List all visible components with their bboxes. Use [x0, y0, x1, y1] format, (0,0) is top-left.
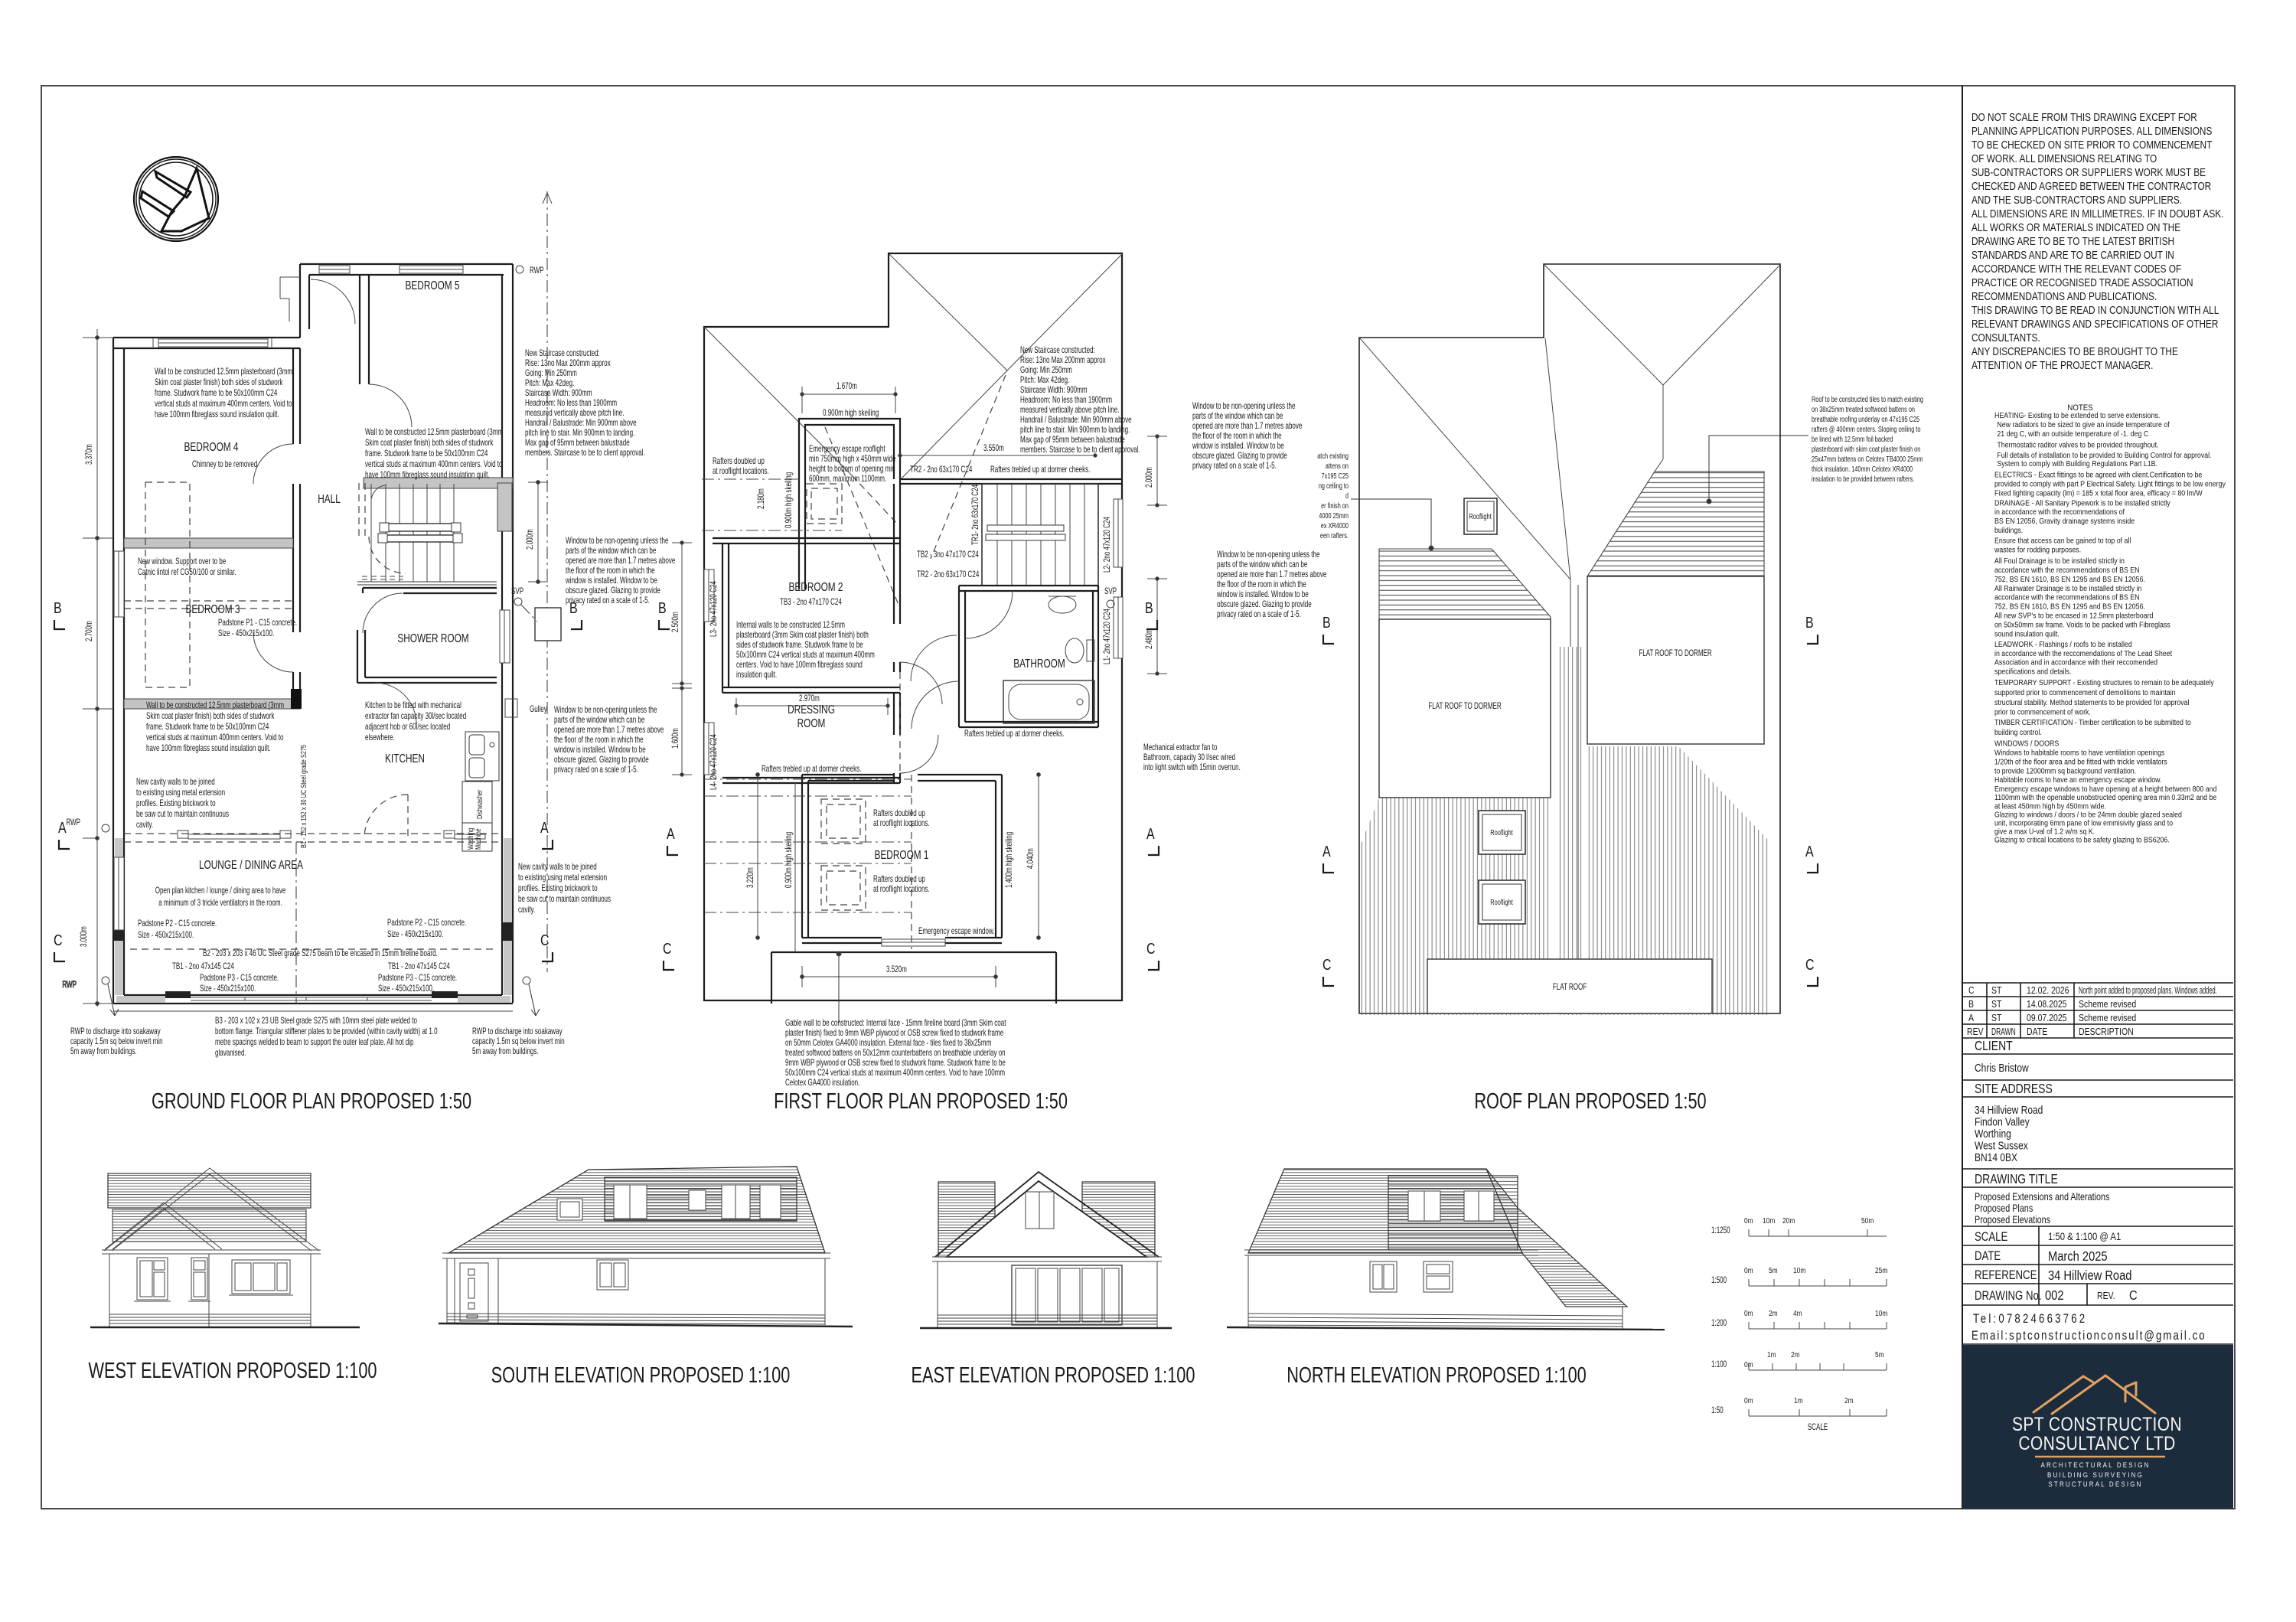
svg-text:BEDROOM 4: BEDROOM 4: [184, 439, 239, 453]
svg-text:KITCHEN: KITCHEN: [385, 751, 425, 765]
svg-text:0m: 0m: [1744, 1309, 1753, 1318]
svg-text:B3 - 203 x 102 x 23 UB Steel: B3 - 203 x 102 x 23 UB Steel grade S275 …: [215, 1017, 438, 1059]
svg-text:C: C: [1146, 940, 1156, 957]
svg-text:BATHROOM: BATHROOM: [1013, 656, 1065, 670]
svg-text:FIRST FLOOR PLAN PROPOSED 1:50: FIRST FLOOR PLAN PROPOSED 1:50: [774, 1089, 1068, 1114]
svg-text:BEDROOM 3: BEDROOM 3: [186, 602, 240, 615]
svg-text:34 Hillview Road Findon Valley: 34 Hillview Road Findon Valley Worthing …: [1975, 1104, 2046, 1164]
svg-text:DATE: DATE: [2027, 1027, 2047, 1037]
svg-text:NORTH ELEVATION PROPOSED 1:100: NORTH ELEVATION PROPOSED 1:100: [1287, 1363, 1587, 1388]
svg-text:3.550m: 3.550m: [983, 444, 1004, 454]
svg-text:1:500: 1:500: [1711, 1276, 1727, 1286]
svg-text:10m: 10m: [1793, 1266, 1805, 1275]
svg-text:A: A: [540, 819, 549, 836]
svg-text:C: C: [540, 932, 550, 948]
svg-text:1.670m: 1.670m: [837, 382, 857, 392]
svg-text:B: B: [54, 599, 62, 616]
svg-text:Gulley: Gulley: [530, 705, 547, 715]
svg-text:GROUND FLOOR PLAN PROPOSED 1:5: GROUND FLOOR PLAN PROPOSED 1:50: [152, 1089, 471, 1114]
svg-text:1:100: 1:100: [1711, 1360, 1727, 1370]
svg-text:Emergency escape window.: Emergency escape window.: [918, 927, 995, 937]
svg-text:Padstone P3 - C15 concrete.Siz: Padstone P3 - C15 concrete.Size - 450x21…: [200, 974, 279, 994]
svg-text:B: B: [569, 599, 578, 616]
svg-text:RWP: RWP: [530, 266, 544, 276]
svg-text:L4- 2no 47x120 C24: L4- 2no 47x120 C24: [709, 734, 719, 790]
svg-text:0.900m high skeiling: 0.900m high skeiling: [784, 472, 794, 528]
svg-text:TB3 - 2no 47x170 C24: TB3 - 2no 47x170 C24: [780, 598, 842, 608]
svg-text:RWP: RWP: [62, 981, 77, 990]
svg-text:DESCRIPTION: DESCRIPTION: [2079, 1027, 2134, 1037]
svg-text:BEDROOM 5: BEDROOM 5: [406, 278, 460, 292]
svg-text:SOUTH ELEVATION PROPOSED 1:100: SOUTH ELEVATION PROPOSED 1:100: [491, 1363, 791, 1388]
svg-text:LOUNGE / DINING AREA: LOUNGE / DINING AREA: [199, 857, 304, 871]
svg-text:RWP: RWP: [66, 818, 80, 828]
svg-text:RWP to discharge into soakaway: RWP to discharge into soakawaycapacity 1…: [472, 1027, 565, 1057]
svg-text:BEDROOM 1: BEDROOM 1: [875, 847, 929, 861]
svg-text:Open plan kitchen / lounge / d: Open plan kitchen / lounge / dining area…: [155, 886, 286, 909]
svg-text:STRUCTURAL DESIGN: STRUCTURAL DESIGN: [2048, 1480, 2142, 1488]
svg-text:Rafters doubled upat rooflight: Rafters doubled upat rooflight locations…: [713, 457, 769, 477]
svg-text:TR1- 2no 63x170 C24: TR1- 2no 63x170 C24: [971, 485, 981, 545]
svg-text:5m: 5m: [1769, 1266, 1778, 1275]
svg-text:Rafters trebled up at dormer: Rafters trebled up at dormer cheeks.: [762, 765, 861, 775]
svg-text:25m: 25m: [1875, 1266, 1887, 1275]
svg-text:2m: 2m: [1769, 1309, 1778, 1318]
svg-text:WEST ELEVATION PROPOSED 1:100: WEST ELEVATION PROPOSED 1:100: [88, 1359, 377, 1383]
svg-text:10m: 10m: [1875, 1309, 1887, 1318]
svg-text:A: A: [667, 825, 675, 842]
svg-text:L3- 2no 47x120 C24: L3- 2no 47x120 C24: [709, 581, 719, 637]
svg-text:Mechanical extractor fan toBat: Mechanical extractor fan toBathroom, cap…: [1143, 743, 1241, 773]
svg-text:Rafters trebled up at dormer: Rafters trebled up at dormer cheeks.: [964, 729, 1064, 739]
svg-text:A: A: [1805, 843, 1814, 860]
svg-text:0m: 0m: [1744, 1266, 1753, 1275]
svg-text:Rooflight: Rooflight: [1490, 898, 1513, 906]
svg-text:10m: 10m: [1763, 1216, 1775, 1225]
svg-text:4m: 4m: [1793, 1309, 1802, 1318]
svg-text:14.08.2025: 14.08.2025: [2027, 1000, 2067, 1010]
svg-text:Wall to be constructed 12.5mm: Wall to be constructed 12.5mm plasterboa…: [365, 428, 503, 481]
svg-text:ARCHITECTURAL DESIGN: ARCHITECTURAL DESIGN: [2040, 1460, 2150, 1469]
svg-text:C: C: [1805, 956, 1815, 973]
svg-text:2.180m: 2.180m: [757, 488, 767, 509]
svg-text:Internal walls to be construct: Internal walls to be constructed 12.5mmp…: [736, 621, 875, 680]
svg-text:BUILDING SURVEYING: BUILDING SURVEYING: [2047, 1470, 2144, 1479]
svg-text:New cavity walls to be joinedt: New cavity walls to be joinedto existing…: [136, 778, 229, 831]
svg-text:002: 002: [2045, 1288, 2064, 1303]
svg-text:SVP: SVP: [511, 587, 523, 597]
svg-text:Window to be non-opening unles: Window to be non-opening unless theparts…: [553, 706, 664, 775]
svg-text:2.480m: 2.480m: [1145, 628, 1155, 649]
svg-text:B: B: [1322, 614, 1331, 631]
svg-text:Chimney to be removed: Chimney to be removed: [192, 460, 257, 470]
svg-text:Email:sptconstructionconsult@g: Email:sptconstructionconsult@gmail.co: [1971, 1329, 2206, 1343]
svg-text:2m: 2m: [1791, 1350, 1800, 1359]
svg-text:TB1 - 2no 47x145 C24: TB1 - 2no 47x145 C24: [388, 962, 450, 972]
svg-text:Rafters doubled upat rooflight: Rafters doubled upat rooflight locations…: [873, 809, 930, 829]
svg-text:2.000m: 2.000m: [1145, 467, 1155, 488]
svg-text:A: A: [1146, 825, 1155, 842]
svg-text:1m: 1m: [1794, 1396, 1803, 1405]
svg-text:2.970m: 2.970m: [799, 694, 820, 704]
svg-text:REV: REV: [1967, 1027, 1984, 1037]
svg-text:Dishwasher: Dishwasher: [475, 790, 484, 819]
svg-text:CONSULTANCY LTD: CONSULTANCY LTD: [2018, 1432, 2175, 1454]
svg-text:Proposed Extensions and Altera: Proposed Extensions and Alterations Prop…: [1975, 1191, 2112, 1225]
svg-text:20m: 20m: [1782, 1216, 1795, 1225]
svg-text:A: A: [1322, 843, 1331, 860]
svg-text:SCALE: SCALE: [1808, 1423, 1828, 1433]
svg-text:B1 - 152 x 152 x 30 UC Steel g: B1 - 152 x 152 x 30 UC Steel grade S275: [299, 745, 308, 848]
svg-text:Kitchen to be fitted with mech: Kitchen to be fitted with mechanicalextr…: [365, 701, 466, 743]
svg-text:09.07.2025: 09.07.2025: [2027, 1013, 2067, 1023]
svg-text:A: A: [1968, 1013, 1974, 1023]
svg-text:C: C: [1322, 956, 1332, 973]
svg-text:1:1250: 1:1250: [1711, 1226, 1730, 1236]
svg-text:DATE: DATE: [1975, 1249, 2001, 1264]
svg-text:4.040m: 4.040m: [1026, 848, 1036, 869]
svg-text:ST: ST: [1991, 986, 2001, 996]
svg-text:L1- 2no 47x120 C24: L1- 2no 47x120 C24: [1103, 609, 1113, 664]
svg-text:atch existingattens on7x195 C2: atch existingattens on7x195 C25ng ceilin…: [1317, 452, 1349, 540]
svg-text:C: C: [2129, 1288, 2138, 1303]
svg-text:Rafters doubled upat rooflight: Rafters doubled upat rooflight locations…: [873, 875, 930, 895]
svg-text:Window to be non-opening unles: Window to be non-opening unless theparts…: [1216, 550, 1327, 620]
svg-text:2.500m: 2.500m: [671, 612, 681, 632]
svg-text:DRAWING No.: DRAWING No.: [1975, 1289, 2042, 1304]
svg-text:3.370m: 3.370m: [85, 444, 95, 465]
svg-text:EAST ELEVATION PROPOSED 1:100: EAST ELEVATION PROPOSED 1:100: [912, 1363, 1195, 1388]
svg-text:TR2 - 2no 63x170 C24: TR2 - 2no 63x170 C24: [910, 465, 973, 475]
svg-text:Tel:07824663762: Tel:07824663762: [1973, 1312, 2087, 1327]
svg-text:34 Hillview Road: 34 Hillview Road: [2048, 1268, 2131, 1283]
svg-text:1.600m: 1.600m: [671, 728, 681, 749]
svg-text:Padstone P2 - C15 concrete.Siz: Padstone P2 - C15 concrete.Size - 450x21…: [138, 919, 217, 941]
svg-text:March 2025: March 2025: [2048, 1249, 2108, 1264]
svg-text:FLAT ROOF TO DORMER: FLAT ROOF TO DORMER: [1639, 649, 1711, 659]
svg-text:Rafters trebled up at dormer: Rafters trebled up at dormer cheeks.: [990, 465, 1090, 475]
svg-text:C: C: [54, 932, 63, 948]
svg-text:FLAT ROOF TO DORMER: FLAT ROOF TO DORMER: [1428, 702, 1501, 712]
svg-text:2.700m: 2.700m: [85, 621, 95, 641]
svg-text:L2- 2no 47x120 C24: L2- 2no 47x120 C24: [1103, 517, 1113, 573]
svg-text:12.02. 2026: 12.02. 2026: [2027, 986, 2069, 996]
svg-text:SVP: SVP: [1104, 587, 1117, 597]
svg-text:B: B: [658, 599, 667, 616]
svg-text:C: C: [1968, 986, 1975, 996]
svg-text:5m: 5m: [1875, 1350, 1884, 1359]
svg-text:FLAT ROOF: FLAT ROOF: [1553, 983, 1587, 993]
svg-text:Scheme revised: Scheme revised: [2079, 1013, 2136, 1023]
svg-text:REFERENCE: REFERENCE: [1975, 1268, 2037, 1283]
svg-text:C: C: [663, 940, 672, 957]
svg-text:0.900m high skeiling: 0.900m high skeiling: [823, 409, 879, 419]
svg-text:1:50: 1:50: [1711, 1406, 1724, 1416]
svg-text:ROOF PLAN PROPOSED 1:50: ROOF PLAN PROPOSED 1:50: [1474, 1089, 1706, 1114]
svg-text:1:200: 1:200: [1711, 1319, 1727, 1329]
svg-text:Rooflight: Rooflight: [1469, 512, 1492, 521]
svg-text:B: B: [1145, 599, 1153, 616]
svg-text:Window to be non-opening unles: Window to be non-opening unless theparts…: [565, 537, 676, 606]
svg-text:TB2 - 3no 47x170 C24: TB2 - 3no 47x170 C24: [917, 550, 979, 560]
svg-text:B: B: [1968, 1000, 1974, 1010]
svg-text:BEDROOM 2: BEDROOM 2: [789, 579, 843, 593]
svg-text:SITE ADDRESS: SITE ADDRESS: [1975, 1082, 2053, 1097]
svg-text:HEATING- Existing to be extend: HEATING- Existing to be extended to serv…: [1994, 411, 2227, 845]
svg-text:1m: 1m: [1767, 1350, 1776, 1359]
svg-text:HALL: HALL: [318, 491, 341, 505]
svg-text:New Staircase constructed:Rise: New Staircase constructed:Rise: 13no Max…: [525, 349, 645, 459]
svg-text:CLIENT: CLIENT: [1975, 1039, 2013, 1054]
svg-text:3.520m: 3.520m: [886, 965, 907, 975]
svg-text:Wall to be constructed 12.5mm: Wall to be constructed 12.5mm plasterboa…: [146, 701, 284, 754]
svg-text:2m: 2m: [1844, 1396, 1854, 1405]
svg-text:TR2 - 2no 63x170 C24: TR2 - 2no 63x170 C24: [917, 570, 980, 580]
svg-text:DRAWN: DRAWN: [1991, 1026, 2016, 1037]
svg-text:B: B: [1805, 614, 1814, 631]
svg-text:SPT CONSTRUCTION: SPT CONSTRUCTION: [2012, 1413, 2182, 1434]
svg-text:Chris Bristow: Chris Bristow: [1975, 1062, 2029, 1075]
svg-text:ST: ST: [1991, 1013, 2001, 1023]
svg-text:New cavity walls to be joinedt: New cavity walls to be joinedto existing…: [518, 863, 611, 915]
svg-text:RWP to discharge into soakaway: RWP to discharge into soakawaycapacity 1…: [70, 1027, 163, 1057]
svg-text:Padstone P1 - C15 concrete.Siz: Padstone P1 - C15 concrete.Size - 450x21…: [218, 618, 297, 639]
svg-text:Rooflight: Rooflight: [1490, 828, 1513, 837]
svg-text:Gable wall to be constructed:: Gable wall to be constructed: Internal f…: [785, 1019, 1006, 1088]
svg-text:DRESSINGROOM: DRESSINGROOM: [788, 702, 835, 729]
svg-text:Emergency escape rooflightmin: Emergency escape rooflightmin 750mm high…: [809, 445, 896, 485]
svg-text:Window to be non-opening unles: Window to be non-opening unless theparts…: [1192, 402, 1303, 472]
svg-text:B2 - 203 x 203 x 46 UC Steel g: B2 - 203 x 203 x 46 UC Steel grade S275 …: [203, 949, 438, 959]
svg-text:SHOWER ROOM: SHOWER ROOM: [397, 631, 468, 645]
svg-text:0m: 0m: [1744, 1216, 1753, 1225]
svg-text:Roof to be constructed tiles t: Roof to be constructed tiles to match ex…: [1812, 395, 1923, 484]
svg-text:Scheme revised: Scheme revised: [2079, 1000, 2136, 1010]
svg-text:DO NOT SCALE FROM THIS DRAWING: DO NOT SCALE FROM THIS DRAWING EXCEPT FO…: [1971, 111, 2226, 372]
svg-text:REV.: REV.: [2097, 1291, 2115, 1301]
svg-text:1.400m high skeiling: 1.400m high skeiling: [1005, 832, 1015, 888]
svg-text:3.000m: 3.000m: [80, 926, 90, 947]
svg-text:SCALE: SCALE: [1975, 1230, 2007, 1245]
svg-text:3.220m: 3.220m: [746, 867, 756, 888]
svg-text:Padstone P2 - C15 concrete.Siz: Padstone P2 - C15 concrete.Size - 450x21…: [387, 919, 466, 940]
svg-text:2.000m: 2.000m: [526, 529, 536, 550]
svg-text:Wall to be constructed 12.5mm: Wall to be constructed 12.5mm plasterboa…: [155, 367, 292, 420]
svg-text:New window. Support over to be: New window. Support over to beCatnic lin…: [138, 557, 236, 578]
svg-text:ST: ST: [1991, 1000, 2001, 1010]
svg-text:1:50 & 1:100 @ A1: 1:50 & 1:100 @ A1: [2048, 1231, 2121, 1242]
svg-text:0m: 0m: [1744, 1360, 1753, 1369]
svg-text:0.900m high skeiling: 0.900m high skeiling: [784, 832, 794, 888]
svg-text:0m: 0m: [1744, 1396, 1753, 1405]
svg-text:DRAWING TITLE: DRAWING TITLE: [1975, 1173, 2058, 1187]
svg-text:50m: 50m: [1861, 1216, 1874, 1225]
svg-text:TB1 - 2no 47x145 C24: TB1 - 2no 47x145 C24: [172, 962, 234, 972]
svg-text:North point added to proposed: North point added to proposed plans. Win…: [2079, 986, 2217, 996]
svg-text:Padstone P3 - C15 concrete.Siz: Padstone P3 - C15 concrete.Size - 450x21…: [378, 974, 457, 994]
